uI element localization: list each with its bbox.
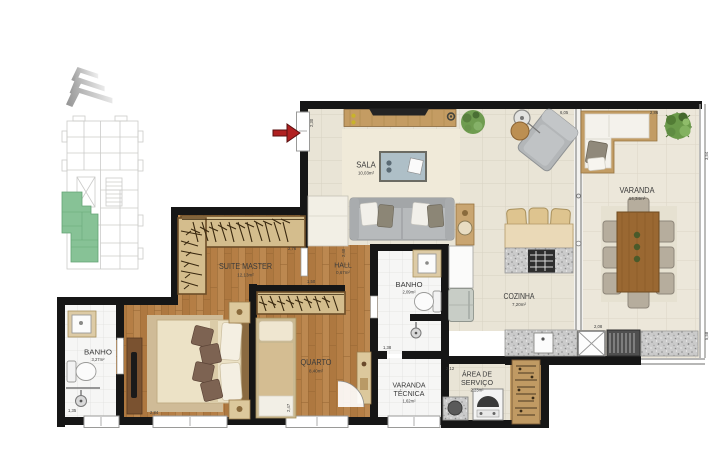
svg-text:0,67m²: 0,67m² (336, 270, 350, 275)
svg-text:SERVIÇO: SERVIÇO (461, 378, 493, 387)
svg-text:5,58: 5,58 (704, 331, 709, 340)
svg-text:2,84: 2,84 (150, 410, 159, 415)
svg-text:7,20m²: 7,20m² (512, 302, 527, 307)
svg-text:SALA: SALA (356, 160, 376, 170)
svg-text:2,47: 2,47 (286, 403, 291, 412)
svg-text:QUARTO: QUARTO (301, 358, 332, 367)
svg-text:12,13m²: 12,13m² (237, 273, 254, 278)
svg-text:1,38: 1,38 (383, 345, 392, 350)
svg-text:2,08: 2,08 (594, 324, 603, 329)
svg-text:3,54: 3,54 (704, 151, 709, 160)
svg-text:1,50: 1,50 (307, 279, 316, 284)
svg-text:3,27m²: 3,27m² (91, 357, 105, 362)
svg-text:2,76: 2,76 (288, 246, 297, 251)
svg-text:2,23m²: 2,23m² (470, 388, 484, 393)
svg-text:2,12: 2,12 (446, 366, 455, 371)
svg-text:6,05: 6,05 (560, 110, 569, 115)
svg-text:SUITE MASTER: SUITE MASTER (219, 262, 272, 271)
svg-text:TÉCNICA: TÉCNICA (394, 389, 425, 398)
svg-text:1,62m²: 1,62m² (402, 399, 416, 404)
svg-text:COZINHA: COZINHA (504, 292, 536, 301)
svg-text:10,03m²: 10,03m² (358, 171, 375, 176)
svg-text:VARANDA: VARANDA (620, 186, 656, 195)
svg-text:BANHO: BANHO (84, 348, 112, 357)
svg-text:14,34m²: 14,34m² (629, 196, 646, 201)
svg-text:2,30: 2,30 (309, 118, 314, 127)
svg-text:2,09m²: 2,09m² (402, 290, 416, 295)
svg-text:1,35: 1,35 (68, 408, 77, 413)
svg-text:HALL: HALL (334, 261, 352, 270)
svg-text:2,40: 2,40 (341, 248, 346, 257)
svg-text:2,86: 2,86 (650, 110, 659, 115)
svg-text:8,40m²: 8,40m² (309, 369, 324, 374)
svg-text:BANHO: BANHO (396, 280, 423, 289)
